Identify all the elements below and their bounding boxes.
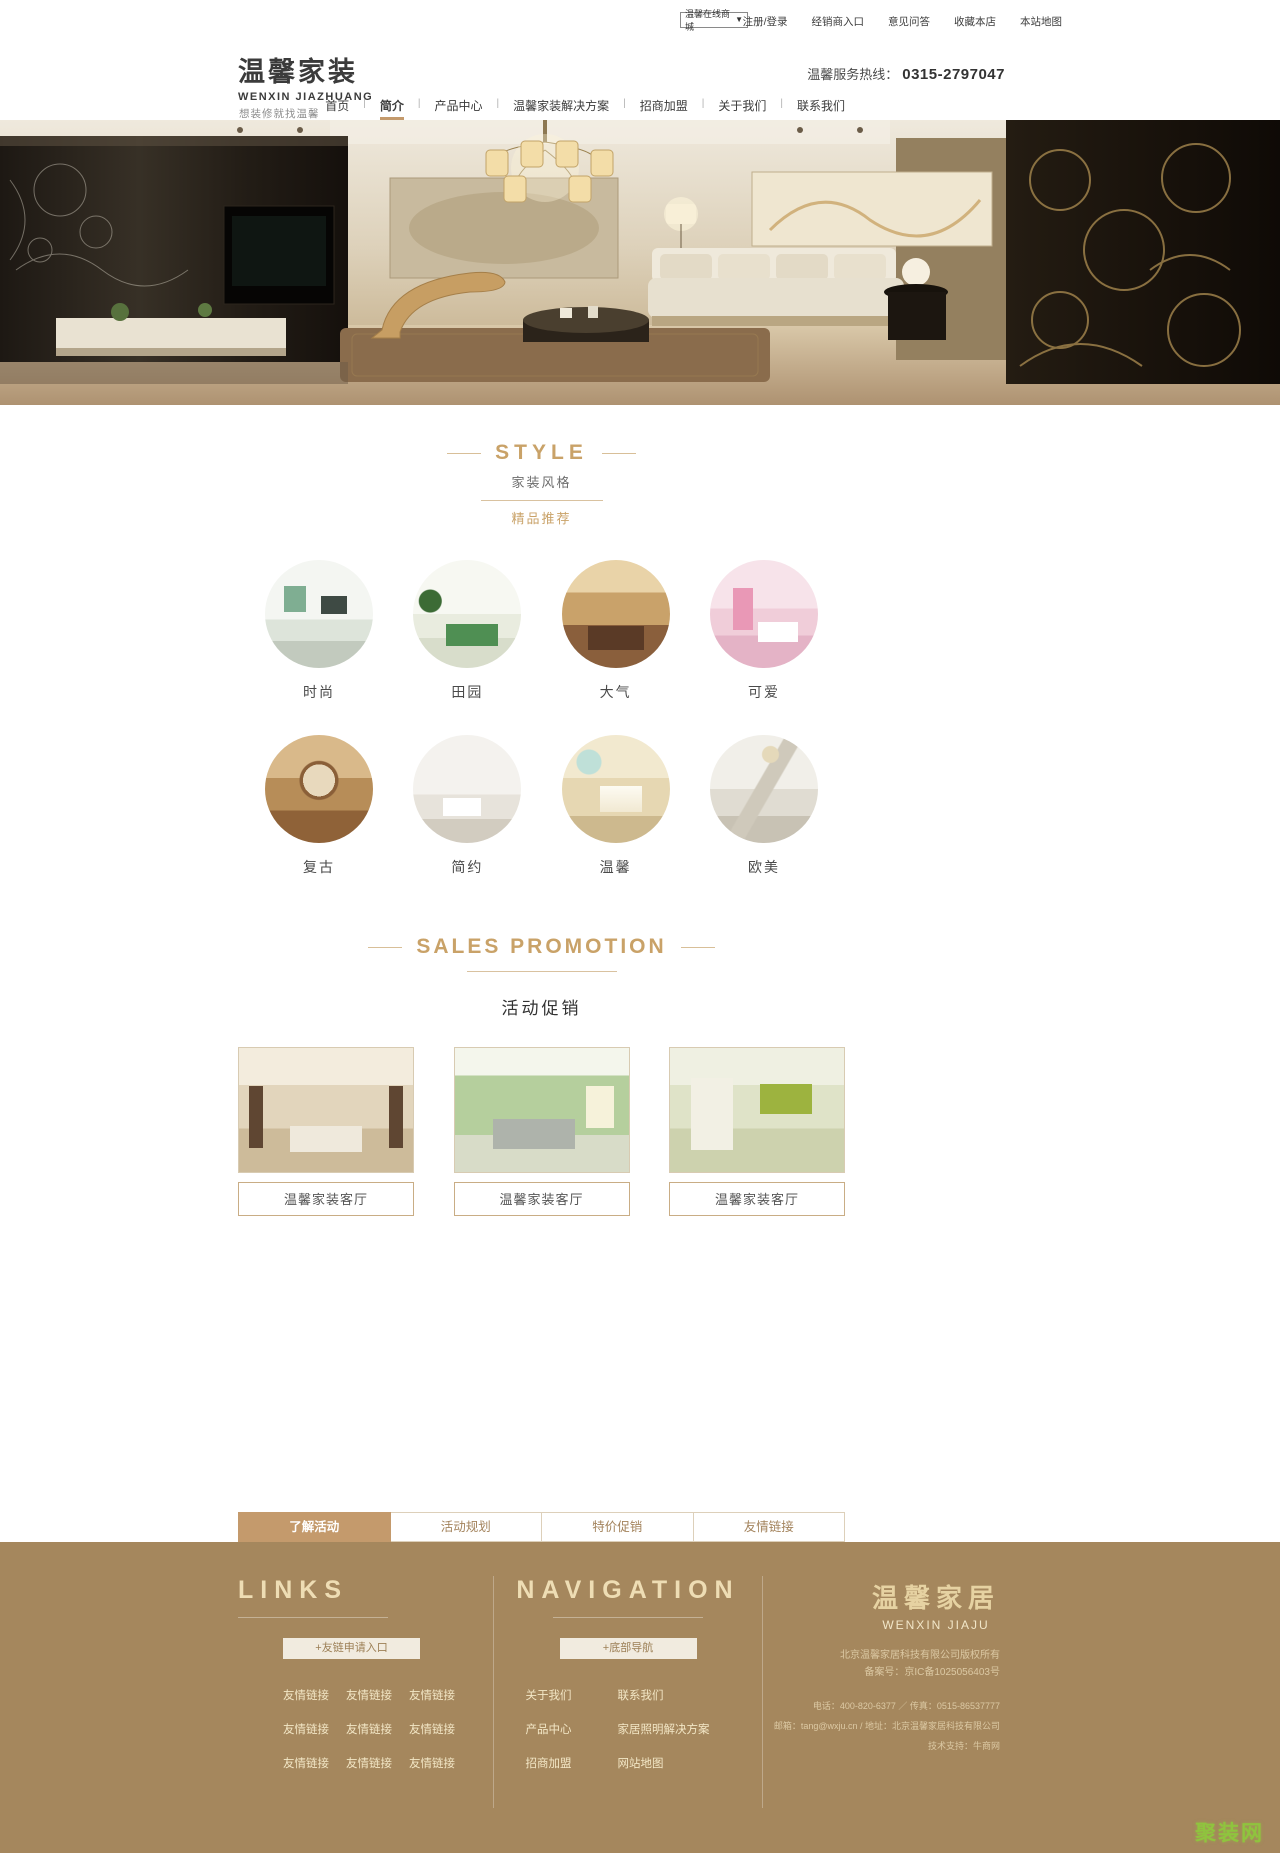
style-image-grand[interactable] [562,560,670,668]
footer-nav-links: 关于我们 联系我们 产品中心 家居照明解决方案 招商加盟 网站地图 [526,1687,731,1771]
promo-image-1[interactable] [238,1047,414,1173]
style-label: 简约 [412,857,522,877]
nav-item-franchise[interactable]: 招商加盟 [640,97,719,120]
style-item-cute[interactable]: 可爱 [709,560,819,702]
style-label: 大气 [561,682,671,702]
footer-nav-title: NAVIGATION [494,1576,762,1605]
footer-logo-subtitle: WENXIN JIAJU [872,1618,1000,1632]
promo-caption-2[interactable]: 温馨家装客厅 [454,1182,630,1216]
friend-link[interactable]: 友情链接 [409,1721,472,1737]
style-label: 欧美 [709,857,819,877]
header: 温馨家装 WENXIN JIAZHUANG 想装修就找温馨 温馨服务热线：031… [0,40,1280,120]
footer-company-column: 温馨家居 WENXIN JIAJU 北京温馨家居科技有限公司版权所有 备案号：京… [763,1576,1043,1808]
footer: LINKS +友链申请入口 友情链接 友情链接 友情链接 友情链接 友情链接 友… [0,1542,1280,1853]
friend-link[interactable]: 友情链接 [283,1687,346,1703]
style-image-cute[interactable] [710,560,818,668]
style-item-western[interactable]: 欧美 [709,735,819,877]
style-image-cozy[interactable] [562,735,670,843]
nav-item-products[interactable]: 产品中心 [434,97,513,120]
bottom-nav-button[interactable]: +底部导航 [560,1638,697,1659]
nav-item-home[interactable]: 首页 [325,97,380,120]
promo-section: SALES PROMOTION 活动促销 温馨家装客厅 温馨家装客厅 温馨家装客… [238,935,845,1216]
hero-art-frame [752,172,992,246]
main-nav: 首页 简介 产品中心 温馨家装解决方案 招商加盟 关于我们 联系我们 [325,97,845,120]
footer-link-contact[interactable]: 联系我们 [618,1687,731,1703]
email-address-line: 邮箱：tang@wxju.cn / 地址：北京温馨家居科技有限公司 [763,1716,1000,1736]
promo-section-subtitle: 活动促销 [238,994,845,1019]
style-item-cozy[interactable]: 温馨 [561,735,671,877]
footer-nav-column: NAVIGATION +底部导航 关于我们 联系我们 产品中心 家居照明解决方案… [494,1576,763,1808]
friend-link[interactable]: 友情链接 [283,1721,346,1737]
hero-tv [224,206,334,304]
style-item-modern[interactable]: 时尚 [264,560,374,702]
icp-line: 备案号：京IC备1025056403号 [763,1664,1000,1681]
service-hotline: 温馨服务热线：0315-2797047 [807,64,1005,83]
style-section: STYLE 家装风格 精品推荐 时尚 田园 大气 可爱 复古 简约 [238,441,845,877]
footer-links-divider [238,1617,388,1618]
footer-links-title: LINKS [238,1576,493,1605]
promo-card-2[interactable]: 温馨家装客厅 [454,1047,630,1216]
footer-logo[interactable]: 温馨家居 WENXIN JIAJU [872,1578,1000,1632]
style-row-2: 复古 简约 温馨 欧美 [238,735,845,877]
style-image-pastoral[interactable] [413,560,521,668]
footer-logo-title: 温馨家居 [872,1578,1000,1615]
footer-links-column: LINKS +友链申请入口 友情链接 友情链接 友情链接 友情链接 友情链接 友… [238,1576,494,1808]
style-image-minimal[interactable] [413,735,521,843]
nav-item-contact[interactable]: 联系我们 [797,97,845,120]
hero-cabinet [56,318,286,352]
nav-item-intro[interactable]: 简介 [380,97,435,120]
style-section-divider [481,500,603,501]
footer-link-about[interactable]: 关于我们 [526,1687,618,1703]
friend-link[interactable]: 友情链接 [409,1687,472,1703]
footer-link-franchise[interactable]: 招商加盟 [526,1755,618,1771]
style-image-modern[interactable] [265,560,373,668]
copyright-line: 北京温馨家居科技有限公司版权所有 [763,1647,1000,1664]
phone-fax-line: 电话：400-820-6377 ／ 传真：0515-86537777 [763,1696,1000,1716]
topbar-link-dealer[interactable]: 经销商入口 [812,14,865,29]
friend-link[interactable]: 友情链接 [283,1755,346,1771]
friend-link[interactable]: 友情链接 [409,1755,472,1771]
topbar-link-feedback[interactable]: 意见问答 [888,14,930,29]
friend-link[interactable]: 友情链接 [346,1721,409,1737]
style-label: 时尚 [264,682,374,702]
style-label: 田园 [412,682,522,702]
hero-banner [0,120,1280,405]
friend-link-apply-button[interactable]: +友链申请入口 [283,1638,420,1659]
promo-image-2[interactable] [454,1047,630,1173]
promo-caption-3[interactable]: 温馨家装客厅 [669,1182,845,1216]
hotline-label: 温馨服务热线： [807,67,898,82]
promo-section-title: SALES PROMOTION [238,935,845,959]
nav-item-solutions[interactable]: 温馨家装解决方案 [513,97,640,120]
promo-cards: 温馨家装客厅 温馨家装客厅 温馨家装客厅 [238,1047,845,1216]
tab-special-offer[interactable]: 特价促销 [542,1512,694,1542]
footer-nav-divider [553,1617,703,1618]
style-label: 可爱 [709,682,819,702]
tab-friend-links[interactable]: 友情链接 [694,1512,846,1542]
logo-title: 温馨家装 [238,50,373,89]
juzhuang-watermark: 聚装网 [1195,1817,1264,1847]
style-item-grand[interactable]: 大气 [561,560,671,702]
topbar-link-favorite[interactable]: 收藏本店 [954,14,996,29]
promo-image-3[interactable] [669,1047,845,1173]
hero-sofa [648,248,904,326]
footer-link-sitemap[interactable]: 网站地图 [618,1755,731,1771]
footer-copyright: 北京温馨家居科技有限公司版权所有 备案号：京IC备1025056403号 [763,1647,1000,1681]
hero-banner-image [0,120,1280,405]
topbar-links: 注册/登录 经销商入口 意见问答 收藏本店 本站地图 [743,14,1062,29]
style-row-1: 时尚 田园 大气 可爱 [238,560,845,702]
tab-learn-activity[interactable]: 了解活动 [238,1512,391,1542]
topbar: 温馨在线商城 ▼ 注册/登录 经销商入口 意见问答 收藏本店 本站地图 [0,0,1280,40]
topbar-link-register[interactable]: 注册/登录 [743,14,788,29]
style-item-minimal[interactable]: 简约 [412,735,522,877]
tech-support-line: 技术支持：牛商网 [763,1736,1000,1756]
tab-activity-plan[interactable]: 活动规划 [391,1512,543,1542]
style-section-badge[interactable]: 精品推荐 [238,508,845,527]
topbar-link-sitemap[interactable]: 本站地图 [1020,14,1062,29]
friend-link[interactable]: 友情链接 [346,1687,409,1703]
style-section-subtitle: 家装风格 [238,472,845,491]
nav-item-about[interactable]: 关于我们 [718,97,797,120]
style-label: 温馨 [561,857,671,877]
style-item-retro[interactable]: 复古 [264,735,374,877]
footer-link-products[interactable]: 产品中心 [526,1721,618,1737]
mall-dropdown[interactable]: 温馨在线商城 ▼ [680,12,748,28]
promo-caption-1[interactable]: 温馨家装客厅 [238,1182,414,1216]
footer-link-solutions[interactable]: 家居照明解决方案 [618,1721,731,1737]
promo-card-3[interactable]: 温馨家装客厅 [669,1047,845,1216]
style-item-pastoral[interactable]: 田园 [412,560,522,702]
hero-carved-screen [1006,120,1280,384]
hotline-number: 0315-2797047 [902,66,1005,83]
activity-tabbar: 了解活动 活动规划 特价促销 友情链接 [238,1512,845,1542]
friend-link[interactable]: 友情链接 [346,1755,409,1771]
promo-section-divider [467,971,617,972]
style-image-retro[interactable] [265,735,373,843]
hero-coffee-table [523,306,649,342]
tagline: 想装修就找温馨 [239,106,320,121]
footer-contact: 电话：400-820-6377 ／ 传真：0515-86537777 邮箱：ta… [763,1696,1000,1756]
style-image-western[interactable] [710,735,818,843]
logo[interactable]: 温馨家装 WENXIN JIAZHUANG [238,50,373,103]
style-label: 复古 [264,857,374,877]
mall-dropdown-label: 温馨在线商城 [685,7,735,33]
friend-links-grid: 友情链接 友情链接 友情链接 友情链接 友情链接 友情链接 友情链接 友情链接 … [283,1687,493,1771]
promo-card-1[interactable]: 温馨家装客厅 [238,1047,414,1216]
style-section-title: STYLE [238,441,845,465]
